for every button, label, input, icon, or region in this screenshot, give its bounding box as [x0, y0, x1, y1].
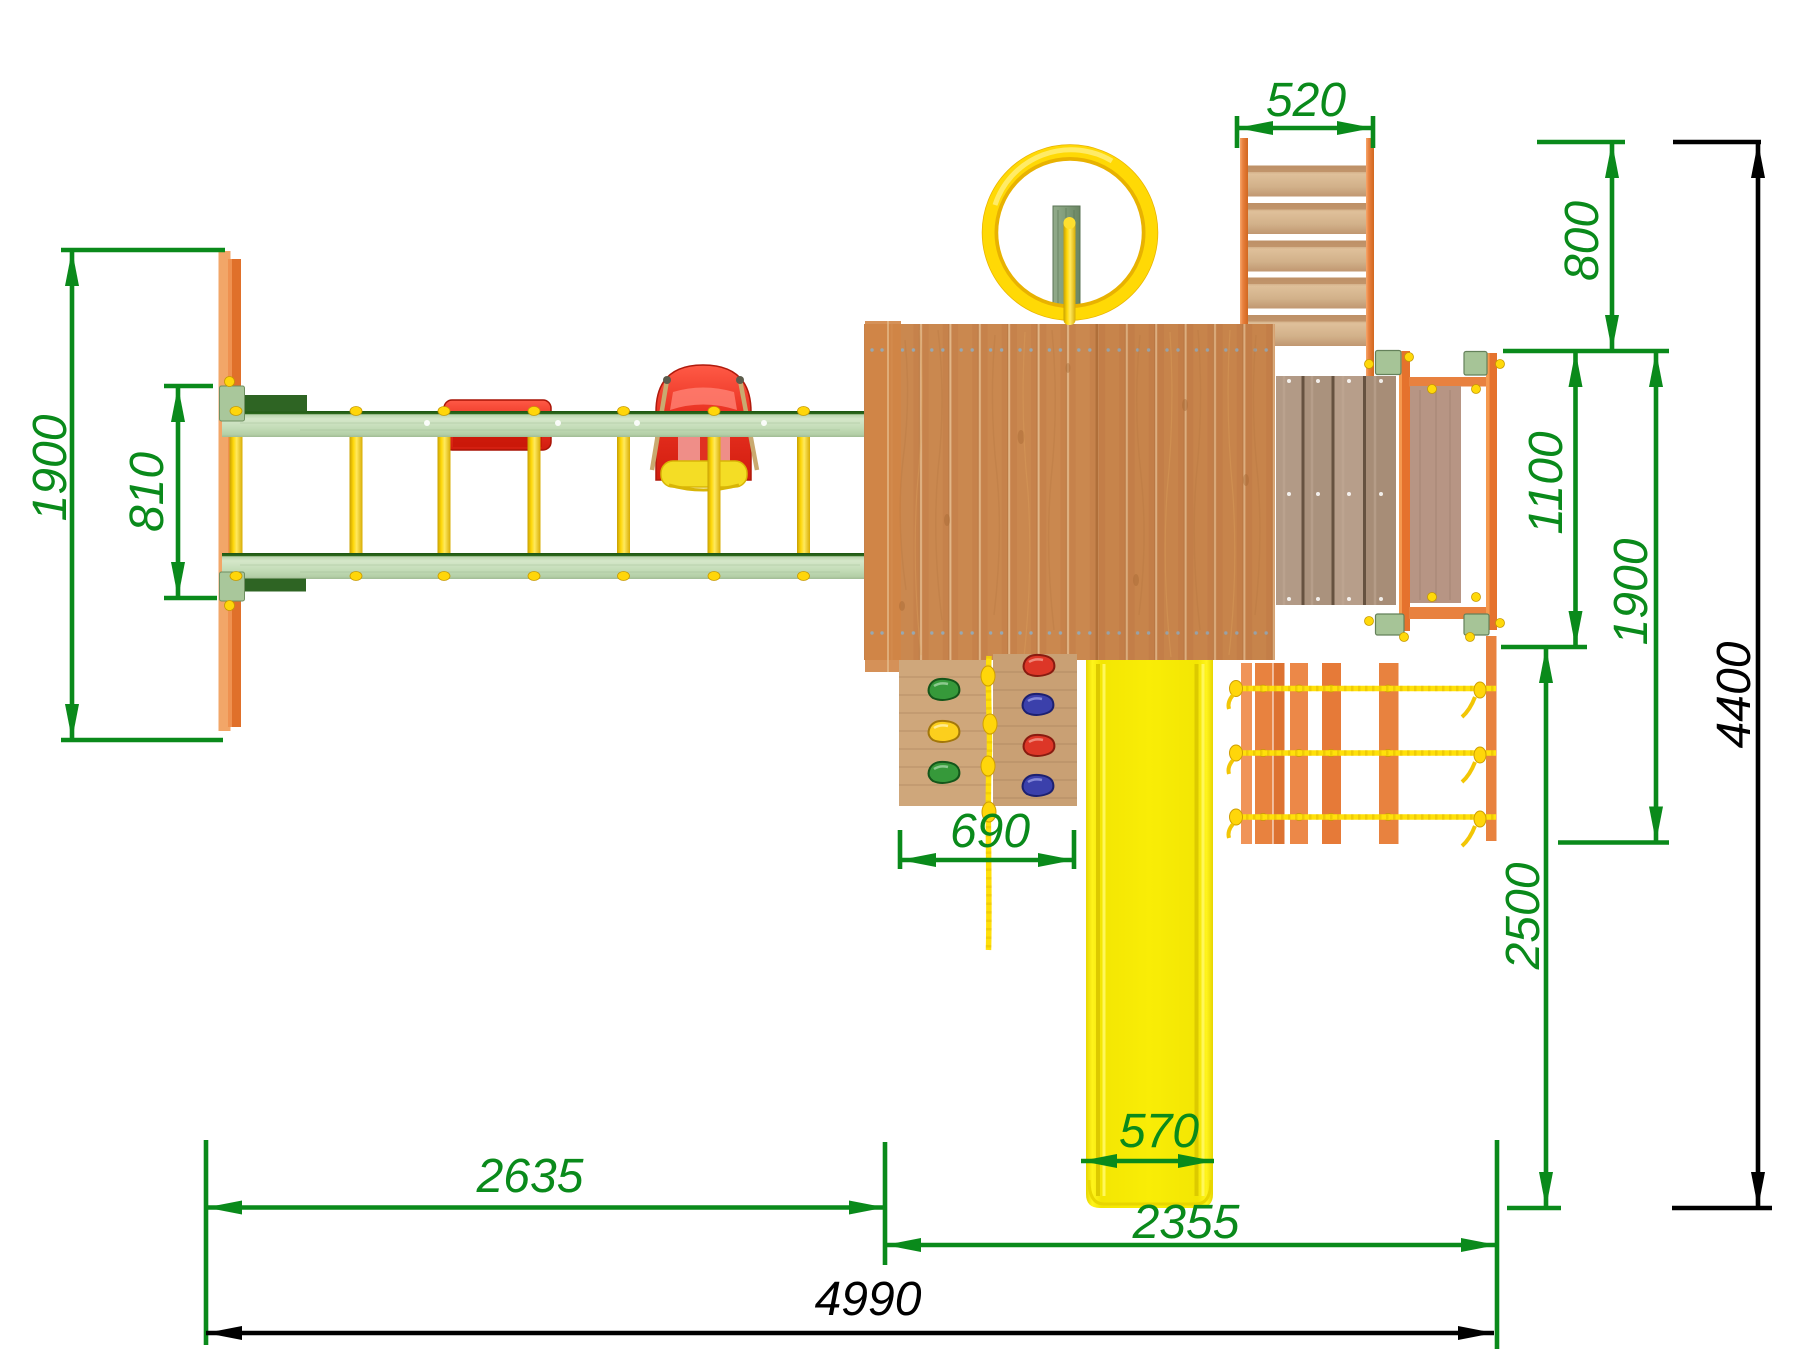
svg-text:4990: 4990: [815, 1273, 922, 1326]
svg-text:810: 810: [121, 452, 174, 532]
svg-text:2635: 2635: [476, 1150, 584, 1203]
svg-text:520: 520: [1266, 74, 1346, 127]
svg-text:4400: 4400: [1708, 641, 1761, 748]
svg-text:690: 690: [950, 805, 1030, 858]
svg-text:1900: 1900: [1605, 538, 1658, 645]
svg-text:570: 570: [1119, 1105, 1199, 1158]
svg-text:800: 800: [1556, 201, 1609, 281]
svg-text:1100: 1100: [1520, 431, 1573, 535]
svg-text:2355: 2355: [1132, 1196, 1240, 1249]
svg-text:1900: 1900: [24, 414, 77, 521]
svg-text:2500: 2500: [1497, 862, 1550, 970]
